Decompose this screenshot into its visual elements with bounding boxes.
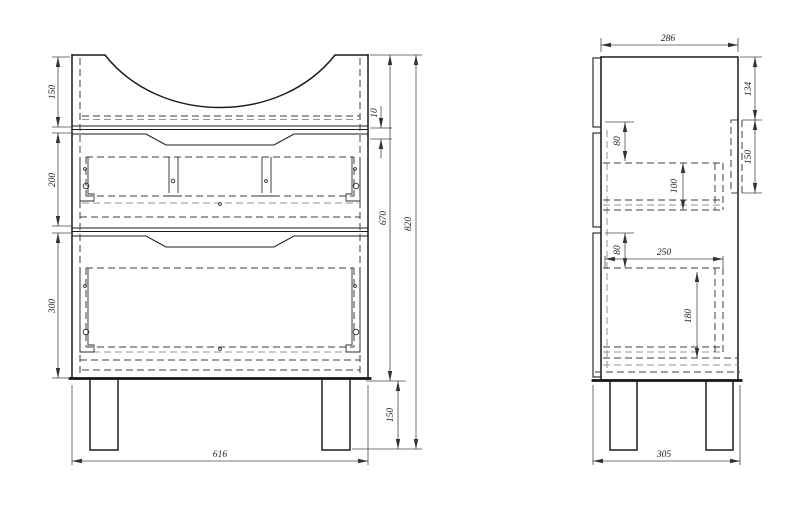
screw-hole <box>219 348 222 351</box>
side-leg-back <box>706 380 733 450</box>
front-legs <box>90 379 350 450</box>
front-drawer2-handle-edge <box>72 236 368 247</box>
slide-bracket-mid1 <box>165 157 182 196</box>
front-drawer-fronts <box>72 126 368 247</box>
dim-side-panel-height: 150 <box>744 150 754 165</box>
side-dim-top: 286 <box>601 34 738 52</box>
dim-front-total-height: 820 <box>404 217 414 232</box>
extension-lines <box>352 55 422 449</box>
screw-hole <box>84 168 87 171</box>
side-dims-internal: 80 100 80 250 180 <box>605 122 723 358</box>
slide-bracket-left <box>80 157 94 201</box>
front-drawer1-box <box>86 157 354 196</box>
dim-front-top-height: 150 <box>48 85 58 100</box>
front-top-sink-curve <box>72 55 368 108</box>
side-leg-front <box>610 380 637 450</box>
side-drawer2-back <box>715 268 723 352</box>
dim-side-offset-top: 134 <box>744 82 754 97</box>
slide-bracket-mid2 <box>258 157 275 196</box>
front-leg-right <box>322 379 350 450</box>
dim-side-drawer-depth: 250 <box>657 248 672 258</box>
side-front-strip-top <box>593 58 601 127</box>
front-drawer1-hardware <box>80 157 360 205</box>
dim-front-width: 616 <box>213 450 228 460</box>
extension-lines <box>740 57 762 193</box>
front-hidden-lines <box>80 58 360 375</box>
screw-hole <box>219 203 222 206</box>
dim-side-drawer1-offset: 80 <box>613 136 623 146</box>
front-drawer2-hardware <box>80 268 360 352</box>
side-dims-right: 134 150 <box>740 57 762 193</box>
dim-front-leg-height: 150 <box>386 408 396 423</box>
slide-bracket-right <box>346 157 360 201</box>
extension-lines <box>370 128 392 139</box>
slide-bracket-left <box>80 268 94 352</box>
front-view: 150 200 300 10 670 150 820 616 <box>48 55 422 465</box>
slide-bracket-right <box>346 268 360 352</box>
side-back-panel <box>731 120 742 193</box>
dim-front-body-height: 670 <box>379 211 389 226</box>
dim-front-gap: 10 <box>370 108 380 118</box>
dim-side-depth-bottom: 305 <box>656 450 672 460</box>
front-dim-bottom: 616 <box>72 385 368 465</box>
screw-hole <box>84 285 87 288</box>
side-dim-bottom: 305 <box>593 385 740 465</box>
side-legs <box>610 380 733 450</box>
front-dims-right: 10 670 150 820 <box>352 55 422 449</box>
drawing-page: 150 200 300 10 670 150 820 616 <box>0 0 800 505</box>
side-view: 286 134 150 80 100 80 250 180 <box>593 34 762 465</box>
technical-drawing-canvas: 150 200 300 10 670 150 820 616 <box>0 0 800 505</box>
side-front-strip-drawer1 <box>593 133 601 227</box>
dim-side-drawer2-box-height: 180 <box>684 309 694 324</box>
screw-hole <box>265 180 268 183</box>
screw-hole <box>353 329 359 335</box>
side-outline <box>593 57 741 381</box>
side-front-strip-drawer2 <box>593 233 601 377</box>
screw-hole <box>354 168 357 171</box>
front-leg-left <box>90 379 118 450</box>
front-drawer1-handle-edge <box>72 134 368 145</box>
dim-side-depth-top: 286 <box>661 34 676 44</box>
front-drawer2-box <box>86 268 354 347</box>
side-drawer1-back <box>715 163 723 210</box>
extension-lines <box>52 57 72 378</box>
front-dims-left: 150 200 300 <box>48 57 72 378</box>
dim-side-drawer1-box-height: 100 <box>670 179 680 194</box>
dim-front-drawer2-height: 300 <box>48 299 58 315</box>
side-top-right-edge <box>601 57 738 380</box>
screw-hole <box>171 179 175 183</box>
dim-front-drawer1-height: 200 <box>48 173 58 188</box>
screw-hole <box>354 285 357 288</box>
dim-side-drawer2-offset: 80 <box>613 245 623 255</box>
